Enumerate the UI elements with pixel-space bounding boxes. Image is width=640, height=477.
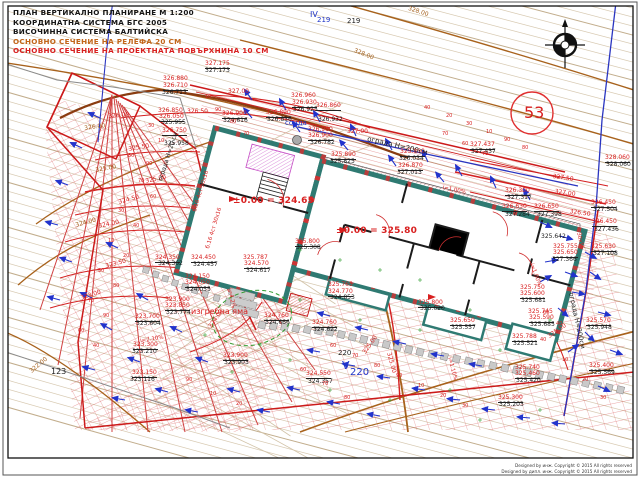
building-level-right: ±0.00 = 325.80 — [336, 226, 417, 236]
project-section-note: ОСНОВНО СЕЧЕНИЕ НА ПРОЕКТНАТА ПОВЪРХНИНА… — [13, 46, 269, 56]
coordinate-system-note: КООРДИНАТНА СИСТЕМА БГС 2005 — [13, 18, 269, 28]
north-compass-icon — [545, 19, 585, 68]
site-plan-svg — [0, 0, 640, 477]
terrain-section-note: ОСНОВНО СЕЧЕНИЕ НА РЕЛЕФА 20 СМ — [13, 37, 269, 47]
credit-line-2: Designed by дипл. инж. Copyright © 2015 … — [501, 469, 632, 474]
borehole-sonda-symbol — [293, 136, 302, 145]
height-system-note: ВИСОЧИННА СИСТЕМА БАЛТИЙСКА — [13, 27, 269, 37]
plan-title: ПЛАН ВЕРТИКАЛНО ПЛАНИРАНЕ М 1:200 — [13, 8, 269, 18]
building-level-left: ±0.00 = 324.65 — [233, 196, 314, 206]
site-plan-page: ПЛАН ВЕРТИКАЛНО ПЛАНИРАНЕ М 1:200 КООРДИ… — [0, 0, 640, 477]
credit-line-1: Designed by инж. Copyright © 2015 All ri… — [515, 463, 632, 468]
title-block: ПЛАН ВЕРТИКАЛНО ПЛАНИРАНЕ М 1:200 КООРДИ… — [13, 8, 269, 56]
